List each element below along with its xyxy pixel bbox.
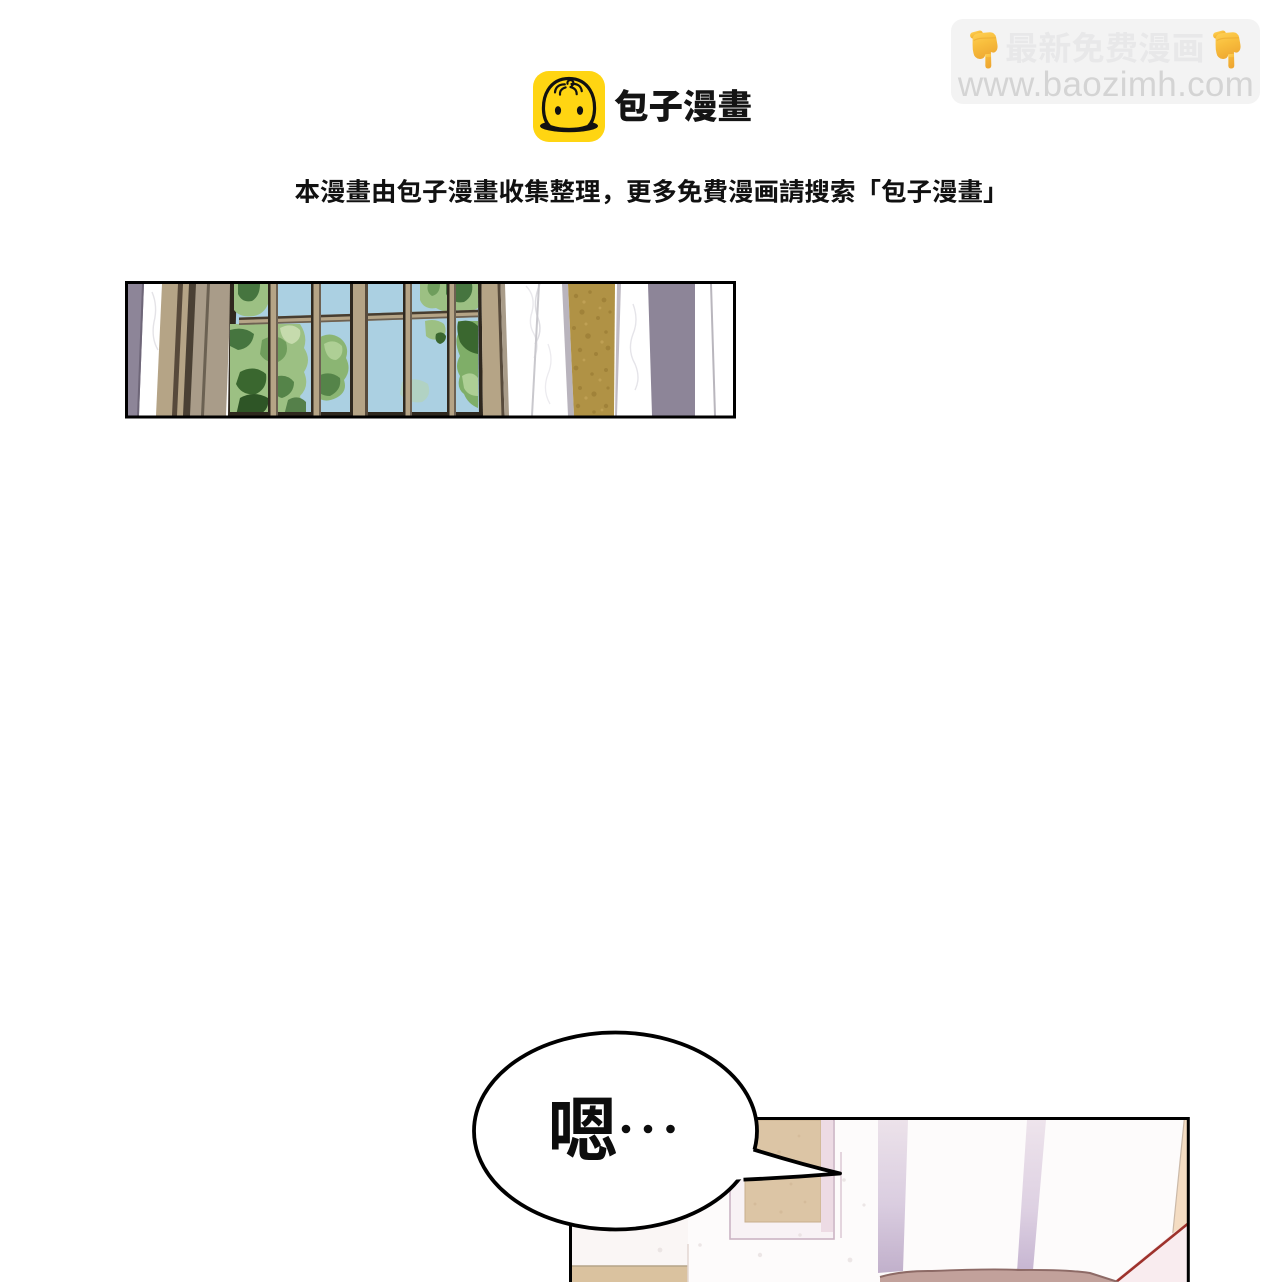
svg-text:www.baozimh.com: www.baozimh.com [957,65,1254,104]
